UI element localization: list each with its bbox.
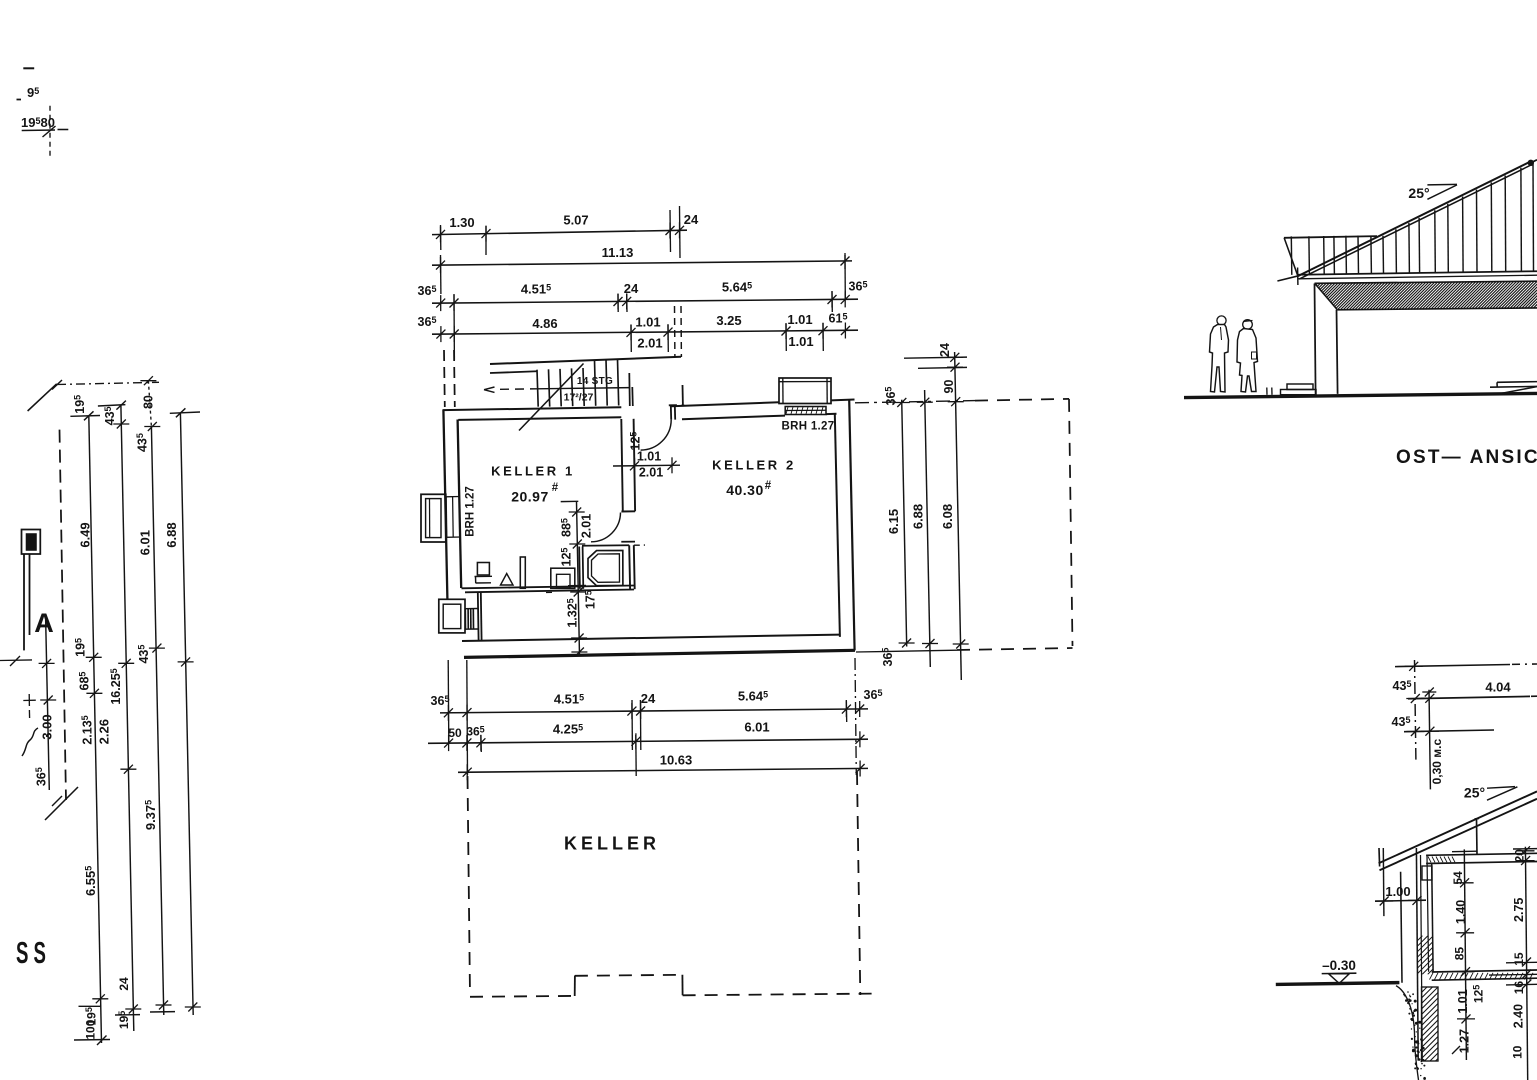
svg-text:24: 24 <box>938 343 952 357</box>
svg-text:2.26: 2.26 <box>96 719 111 744</box>
svg-text:1.01: 1.01 <box>637 450 661 464</box>
svg-text:1.01: 1.01 <box>787 312 812 327</box>
svg-text:25°: 25° <box>1464 785 1485 801</box>
svg-text:14 STG: 14 STG <box>577 376 613 387</box>
svg-text:#: # <box>765 480 772 492</box>
svg-text:2.40: 2.40 <box>1511 1004 1525 1028</box>
svg-text:16.255: 16.255 <box>109 668 124 704</box>
svg-text:KELLER 2: KELLER 2 <box>712 458 796 473</box>
svg-text:4.86: 4.86 <box>532 316 557 331</box>
svg-text:40.30: 40.30 <box>726 482 764 498</box>
svg-text:90: 90 <box>942 380 956 394</box>
svg-text:20: 20 <box>1513 849 1527 863</box>
svg-text:54: 54 <box>1451 871 1465 885</box>
svg-text:3.25: 3.25 <box>716 313 741 328</box>
svg-text:1.40: 1.40 <box>1454 900 1468 924</box>
svg-text:24: 24 <box>117 977 131 991</box>
svg-text:6.01: 6.01 <box>138 530 153 555</box>
svg-text:4.04: 4.04 <box>1485 680 1511 695</box>
svg-text:6.01: 6.01 <box>744 720 769 735</box>
svg-text:3.00: 3.00 <box>40 714 55 739</box>
svg-text:25°: 25° <box>1408 185 1429 201</box>
svg-text:50: 50 <box>448 726 462 740</box>
svg-text:6.15: 6.15 <box>886 509 901 534</box>
svg-text:–0.30: –0.30 <box>1322 958 1356 973</box>
svg-text:80: 80 <box>141 395 155 409</box>
svg-text:24: 24 <box>624 281 639 296</box>
svg-text:2.01: 2.01 <box>637 336 662 351</box>
svg-text:BRH 1.27: BRH 1.27 <box>782 421 835 433</box>
svg-text:1.01: 1.01 <box>1456 989 1470 1013</box>
svg-text:1.27: 1.27 <box>1457 1029 1471 1053</box>
svg-text:1.01: 1.01 <box>635 315 660 330</box>
svg-text:5.07: 5.07 <box>563 213 588 228</box>
svg-text:16: 16 <box>1512 981 1526 995</box>
svg-text:10.63: 10.63 <box>660 753 693 768</box>
svg-text:6.08: 6.08 <box>940 504 955 529</box>
svg-text:6.49: 6.49 <box>78 522 93 547</box>
svg-text:17²/27: 17²/27 <box>564 392 594 404</box>
svg-text:24: 24 <box>684 212 699 227</box>
svg-text:11.13: 11.13 <box>602 245 634 260</box>
svg-text:2.01: 2.01 <box>579 514 593 538</box>
svg-text:6.88: 6.88 <box>910 504 925 529</box>
svg-text:6.88: 6.88 <box>164 522 179 547</box>
svg-text:KELLER 1: KELLER 1 <box>491 464 575 479</box>
svg-text:2.75: 2.75 <box>1512 898 1526 922</box>
svg-text:OST— ANSICHT: OST— ANSICHT <box>1396 447 1537 468</box>
svg-text:0,30 м.с: 0,30 м.с <box>1430 738 1444 784</box>
svg-text:24: 24 <box>641 691 656 706</box>
svg-text:KELLER: KELLER <box>564 834 660 854</box>
svg-text:#: # <box>552 482 559 494</box>
svg-text:1.30: 1.30 <box>449 215 474 230</box>
svg-text:1.00: 1.00 <box>1385 884 1410 899</box>
svg-text:1.01: 1.01 <box>788 334 813 349</box>
svg-text:85: 85 <box>1452 947 1466 961</box>
svg-text:10: 10 <box>1511 1045 1525 1059</box>
svg-text:S S: S S <box>16 936 46 970</box>
svg-text:15: 15 <box>1512 952 1526 966</box>
svg-text:100: 100 <box>84 1019 98 1039</box>
svg-text:A: A <box>34 608 54 638</box>
svg-text:2.01: 2.01 <box>639 466 663 480</box>
svg-text:20.97: 20.97 <box>511 489 549 505</box>
svg-text:BRH 1.27: BRH 1.27 <box>464 486 476 537</box>
